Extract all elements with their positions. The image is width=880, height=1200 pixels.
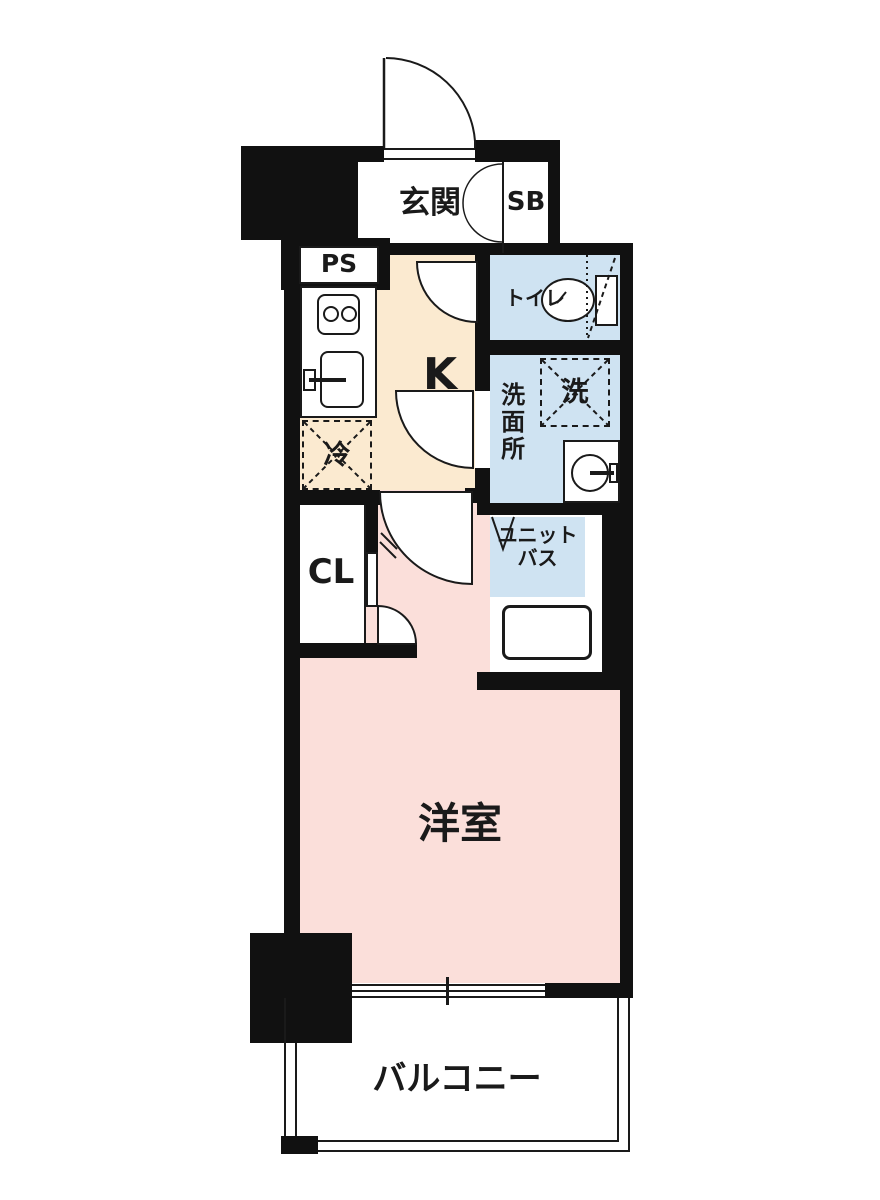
- balcony-rail-inner-bottom: [296, 1140, 619, 1142]
- entrance-label: 玄関: [365, 186, 495, 222]
- unit-bath-label-line1: ユニット: [498, 523, 578, 547]
- wall-toilet-washroom: [477, 340, 633, 355]
- balcony-label: バルコニー: [332, 1060, 582, 1099]
- closet-label: CL: [298, 553, 364, 592]
- unit-bath-label: ユニット バス: [488, 524, 587, 570]
- wall-under-entrance: [386, 243, 633, 255]
- wall-left-outer: [284, 255, 300, 988]
- kitchen-faucet-handle: [303, 369, 316, 391]
- wall-bath-bottom: [477, 672, 633, 690]
- room-door-leaf: [366, 552, 378, 607]
- washbasin-bowl: [571, 454, 609, 492]
- entrance-threshold: [384, 148, 475, 160]
- stove-burner-right: [341, 306, 357, 322]
- pipe-space-label: PS: [299, 250, 379, 279]
- entrance-door-arc: [386, 58, 475, 148]
- wall-shoebox-right: [548, 146, 560, 253]
- kitchen-label: K: [400, 350, 480, 401]
- floor-plan: 玄関 SB PS K トイレ 洗面所 洗 冷 CL ユニット バス 洋室 バルコ…: [0, 0, 880, 1200]
- bathtub: [502, 605, 592, 660]
- wall-top-bar-left-of-door: [352, 146, 384, 162]
- wall-right-outer-upper: [620, 243, 633, 515]
- kitchen-sink: [320, 351, 364, 408]
- wall-room-door-stub: [465, 488, 490, 503]
- balcony-corner-block: [281, 1136, 318, 1154]
- balcony-rail-inner-left: [295, 1043, 297, 1142]
- wall-bath-right: [602, 515, 633, 690]
- wall-right-outer-lower: [620, 690, 633, 998]
- toilet-tank: [595, 275, 618, 326]
- wall-top-left-block: [241, 146, 358, 240]
- toilet-label: トイレ: [496, 287, 574, 310]
- washbasin-faucet-tick: [609, 463, 618, 483]
- wall-room-bottom-right: [545, 983, 633, 998]
- wall-closet-bottom: [284, 643, 417, 658]
- wall-closet-right-bar: [366, 505, 378, 552]
- washing-machine-label: 洗: [540, 377, 610, 408]
- stove-burner-left: [323, 306, 339, 322]
- washroom-label: 洗面所: [496, 382, 524, 463]
- wall-washroom-unitbath: [477, 503, 633, 515]
- western-room-label: 洋室: [370, 800, 550, 848]
- refrigerator-label: 冷: [302, 440, 372, 471]
- balcony-rail-inner-right: [617, 998, 619, 1142]
- unit-bath-label-line2: バス: [518, 546, 558, 570]
- shoe-box-label: SB: [504, 188, 548, 218]
- wall-closet-top: [284, 490, 380, 505]
